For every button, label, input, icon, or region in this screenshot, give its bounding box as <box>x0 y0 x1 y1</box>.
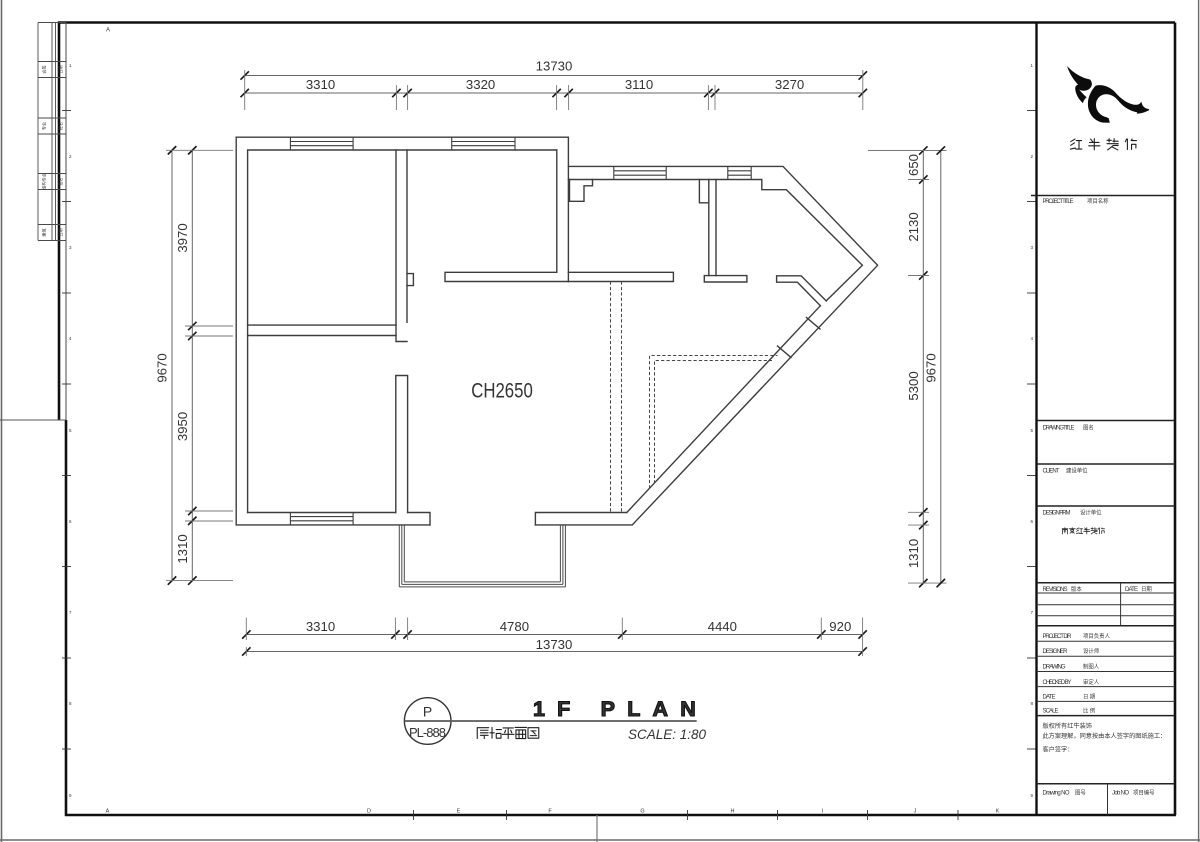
svg-text:审定人: 审定人 <box>1083 678 1100 686</box>
svg-text:版权所有红牛装饰: 版权所有红牛装饰 <box>1043 722 1093 730</box>
svg-text:图号: 图号 <box>1075 789 1086 797</box>
svg-text:日期: 日期 <box>1141 586 1152 593</box>
svg-text:2130: 2130 <box>906 212 921 241</box>
svg-text:DESIGNER: DESIGNER <box>1043 649 1069 655</box>
svg-text:3270: 3270 <box>775 77 804 92</box>
svg-text:E: E <box>457 809 461 815</box>
svg-text:H: H <box>731 809 735 815</box>
svg-text:DATE: DATE <box>1043 695 1056 701</box>
svg-text:1310: 1310 <box>175 534 190 563</box>
svg-text:姓名: 姓名 <box>57 122 64 130</box>
svg-text:K: K <box>996 809 1000 815</box>
svg-text:J: J <box>914 809 917 815</box>
svg-text:项目名称: 项目名称 <box>1087 197 1109 205</box>
svg-text:DATE: DATE <box>1125 587 1138 593</box>
svg-text:版本: 版本 <box>1071 585 1082 593</box>
svg-text:3970: 3970 <box>175 223 190 252</box>
svg-text:PROJECT TITLE: PROJECT TITLE <box>1043 199 1074 205</box>
svg-text:A: A <box>106 809 110 815</box>
svg-text:DRAWING TITLE: DRAWING TITLE <box>1043 426 1075 432</box>
svg-text:专业: 专业 <box>41 122 48 130</box>
svg-text:制图人: 制图人 <box>1083 663 1100 671</box>
svg-text:此方案理解，同意按由本人签字的图纸施工：: 此方案理解，同意按由本人签字的图纸施工： <box>1043 732 1167 740</box>
svg-text:建筑: 建筑 <box>41 228 48 237</box>
svg-text:客户签字：: 客户签字： <box>1043 746 1074 754</box>
svg-text:结构专业: 结构专业 <box>41 173 48 190</box>
svg-text:3310: 3310 <box>306 619 335 634</box>
svg-text:签名: 签名 <box>57 177 64 185</box>
svg-text:Job NO: Job NO <box>1112 791 1129 797</box>
svg-text:4780: 4780 <box>500 619 529 634</box>
svg-text:REVISIONS: REVISIONS <box>1043 587 1068 593</box>
svg-text:CH2650: CH2650 <box>471 380 533 403</box>
svg-text:A: A <box>106 28 110 34</box>
svg-text:G: G <box>640 809 644 815</box>
svg-text:13730: 13730 <box>536 59 573 74</box>
svg-text:3950: 3950 <box>175 412 190 441</box>
svg-text:CHECKED BY: CHECKED BY <box>1043 680 1072 686</box>
svg-text:Drawing NO: Drawing NO <box>1043 791 1070 797</box>
svg-text:设计单位: 设计单位 <box>1080 509 1102 517</box>
svg-text:D: D <box>367 809 371 815</box>
svg-text:1310: 1310 <box>906 539 921 568</box>
svg-text:9670: 9670 <box>924 353 939 382</box>
svg-text:9670: 9670 <box>155 353 170 382</box>
svg-text:920: 920 <box>829 619 851 634</box>
svg-text:会签: 会签 <box>41 65 48 74</box>
svg-text:DRAWING: DRAWING <box>1043 665 1066 671</box>
svg-text:比 例: 比 例 <box>1083 706 1095 714</box>
svg-text:SCALE: SCALE <box>1043 708 1059 714</box>
svg-text:1F PLAN: 1F PLAN <box>533 697 708 721</box>
svg-text:3320: 3320 <box>466 77 495 92</box>
svg-text:3110: 3110 <box>625 77 653 92</box>
svg-text:CLIENT: CLIENT <box>1043 469 1060 475</box>
svg-text:13730: 13730 <box>536 637 573 652</box>
svg-text:设计师: 设计师 <box>1083 647 1100 655</box>
svg-text:PROJECT DIR: PROJECT DIR <box>1043 634 1073 640</box>
svg-text:3310: 3310 <box>306 77 335 92</box>
svg-text:日 期: 日 期 <box>1083 694 1095 701</box>
svg-text:SCALE: 1:80: SCALE: 1:80 <box>628 727 707 742</box>
svg-text:P: P <box>423 704 432 720</box>
svg-text:DESIGN FIRM: DESIGN FIRM <box>1043 511 1071 517</box>
svg-text:项目负责人: 项目负责人 <box>1083 632 1111 640</box>
svg-text:4440: 4440 <box>708 619 737 634</box>
svg-text:图名: 图名 <box>1083 424 1094 432</box>
svg-text:PL-888: PL-888 <box>409 725 446 740</box>
svg-text:项目编号: 项目编号 <box>1133 789 1155 797</box>
svg-text:5300: 5300 <box>906 371 921 400</box>
svg-text:建设单位: 建设单位 <box>1066 467 1088 475</box>
svg-text:650: 650 <box>906 154 921 176</box>
